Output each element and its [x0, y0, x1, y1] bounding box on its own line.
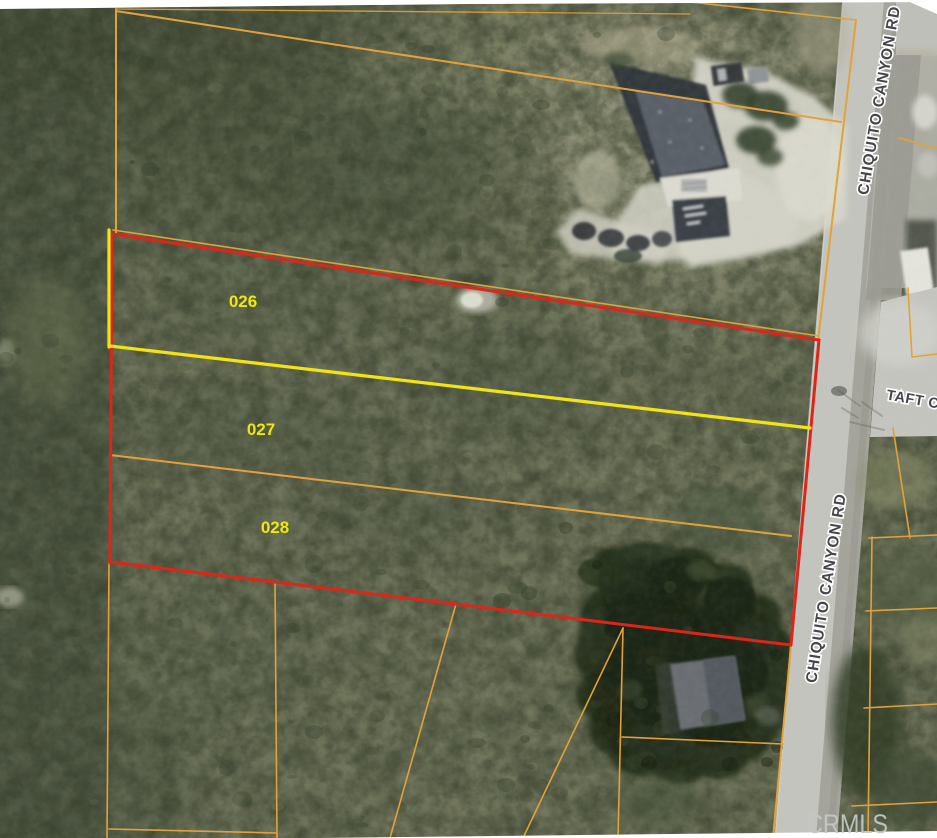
svg-text:028: 028 — [261, 518, 289, 537]
svg-text:026: 026 — [229, 292, 257, 311]
svg-text:027: 027 — [247, 420, 275, 439]
svg-text:CRMLS: CRMLS — [806, 809, 888, 838]
